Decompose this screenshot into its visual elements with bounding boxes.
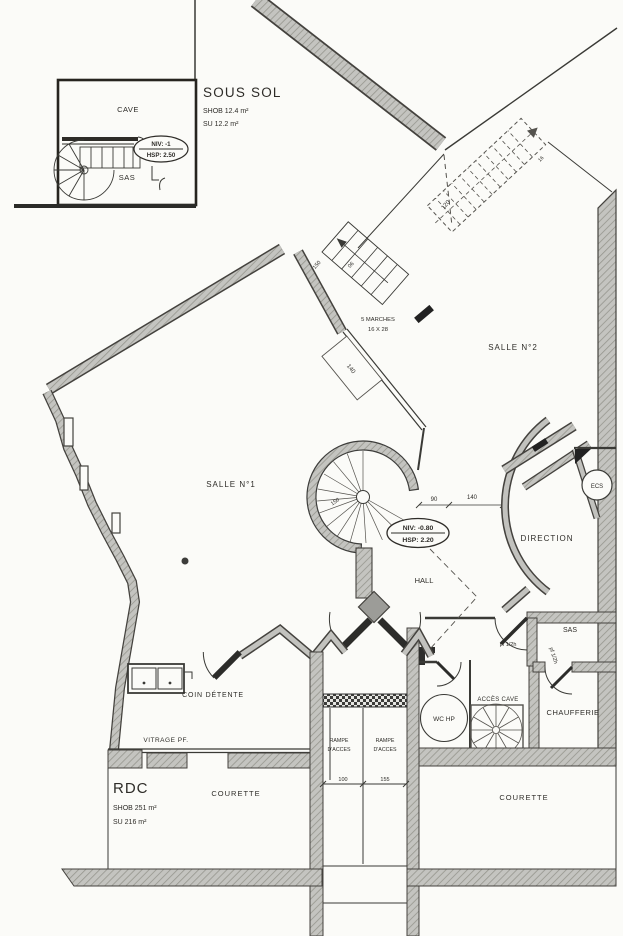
- courtyard-wall-left: [62, 869, 322, 886]
- wall-nw: [49, 249, 282, 389]
- dimension-90-140: 90 140: [416, 495, 506, 508]
- ramp-wall-left: [310, 652, 323, 936]
- wall-top-diagonal: [256, 0, 441, 144]
- boundary-right-upper: [548, 142, 612, 192]
- label-rampe-left-2: D'ACCES: [327, 747, 351, 753]
- inset-spiral-stair: [54, 140, 114, 200]
- pier-2: [80, 466, 88, 490]
- dim-16: 16: [537, 155, 545, 163]
- dim-140: 140: [467, 495, 478, 501]
- stair-note-2: 16 X 28: [368, 327, 388, 333]
- spiral-wall-stub: [356, 548, 372, 598]
- dim-06: 06: [347, 261, 356, 270]
- dim-155: 155: [380, 777, 389, 783]
- label-salle-1: SALLE N°1: [206, 480, 256, 489]
- ramp-threshold-grating: [323, 694, 407, 707]
- inset-niv-label: NIV: -1: [151, 141, 171, 148]
- niv-label: NIV: -0.80: [403, 525, 434, 532]
- wall-south-right: [419, 748, 616, 766]
- label-vitrage: VITRAGE PF.: [143, 737, 188, 744]
- label-hall: HALL: [415, 576, 434, 585]
- inset-underline: [14, 204, 196, 208]
- label-courette-right: COURETTE: [499, 793, 548, 802]
- scanned-floor-plan-page: NIV: -1 HSP: 2.50 CAVE SAS SOUS SOL SHOB…: [0, 0, 623, 936]
- label-direction: DIRECTION: [521, 534, 574, 543]
- label-sas: SAS: [563, 627, 577, 634]
- column-dot: [182, 558, 189, 565]
- door-rating-2: pf 1/2h: [547, 647, 558, 665]
- pier-3: [112, 513, 120, 533]
- label-ecs: ECS: [591, 484, 603, 490]
- dim-90: 90: [431, 497, 438, 503]
- service-rooms: WC HP ACCÈS CAVE CHAUFFERIE: [407, 628, 616, 936]
- inset-shob: SHOB 12.4 m²: [203, 108, 249, 115]
- label-salle-2: SALLE N°2: [488, 343, 538, 352]
- entry-stair: 150 06 5 MARCHES 16 X 28: [298, 154, 444, 333]
- inset-straight-stair: [80, 147, 140, 168]
- courtyard-wall-right: [407, 869, 616, 886]
- label-rampe-right-1: RAMPE: [376, 738, 395, 744]
- title-block-rdc: RDC SHOB 251 m² SU 216 m²: [113, 780, 157, 826]
- pier-black: [414, 305, 434, 323]
- inset-su: SU 12.2 m²: [203, 121, 239, 128]
- wall-chaufferie-left: [529, 666, 539, 758]
- door-leaf-coin: [212, 650, 242, 680]
- label-courette-left: COURETTE: [211, 789, 260, 798]
- pier-1: [64, 418, 73, 446]
- floor-plan-drawing: NIV: -1 HSP: 2.50 CAVE SAS SOUS SOL SHOB…: [0, 0, 623, 936]
- exterior-stair-dashed: 120 16: [423, 114, 550, 236]
- inset-level-tag: NIV: -1 HSP: 2.50: [134, 136, 188, 162]
- label-coin-detente: COIN DÉTENTE: [182, 690, 244, 699]
- hall-area: HALL: [313, 549, 477, 657]
- hall-dashed-boundary: [430, 549, 477, 649]
- inset-hsp-label: HSP: 2.50: [147, 152, 176, 159]
- level-tag-rdc: NIV: -0.80 HSP: 2.20: [387, 519, 449, 548]
- inset-door-jamb: [152, 166, 159, 180]
- sas-area: SAS pf 1/2h pf 1/2h: [425, 589, 616, 666]
- inset-room-sas: SAS: [119, 173, 136, 182]
- label-shob: SHOB 251 m²: [113, 805, 157, 812]
- label-wc: WC HP: [433, 716, 455, 723]
- label-su: SU 216 m²: [113, 819, 147, 826]
- dim-100: 100: [338, 777, 347, 783]
- inset-room-cave: CAVE: [117, 105, 139, 114]
- dim-150-corridor: 150: [312, 260, 323, 271]
- inset-title: SOUS SOL: [203, 85, 282, 100]
- label-rdc: RDC: [113, 780, 149, 797]
- label-chaufferie: CHAUFFERIE: [547, 708, 600, 717]
- hsp-label: HSP: 2.20: [402, 537, 434, 544]
- wall-wc-left: [407, 628, 419, 936]
- coin-detente-area: COIN DÉTENTE VITRAGE PF.: [108, 629, 312, 768]
- label-rampe-right-2: D'ACCES: [373, 747, 397, 753]
- door-rating-1: pf 1/2h: [500, 642, 517, 648]
- stair-note-1: 5 MARCHES: [361, 317, 395, 323]
- label-acces-cave: ACCÈS CAVE: [477, 696, 518, 703]
- label-rampe-left-1: RAMPE: [330, 738, 349, 744]
- sous-sol-inset: NIV: -1 HSP: 2.50 CAVE SAS SOUS SOL SHOB…: [14, 0, 282, 208]
- spiral-staircase: 150: [307, 441, 418, 598]
